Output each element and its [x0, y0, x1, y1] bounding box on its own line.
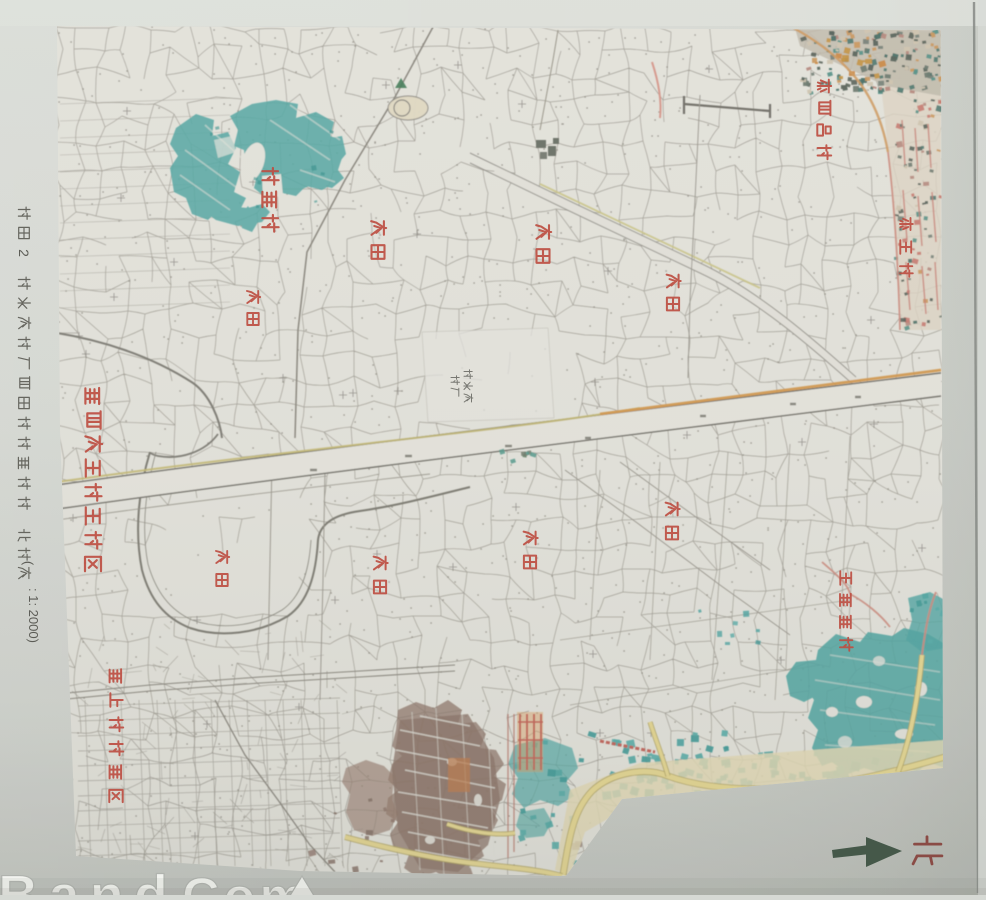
svg-text:(: ( — [21, 561, 36, 566]
svg-text:: 1: 2000): : 1: 2000) — [26, 588, 41, 643]
svg-text:2: 2 — [16, 249, 32, 257]
